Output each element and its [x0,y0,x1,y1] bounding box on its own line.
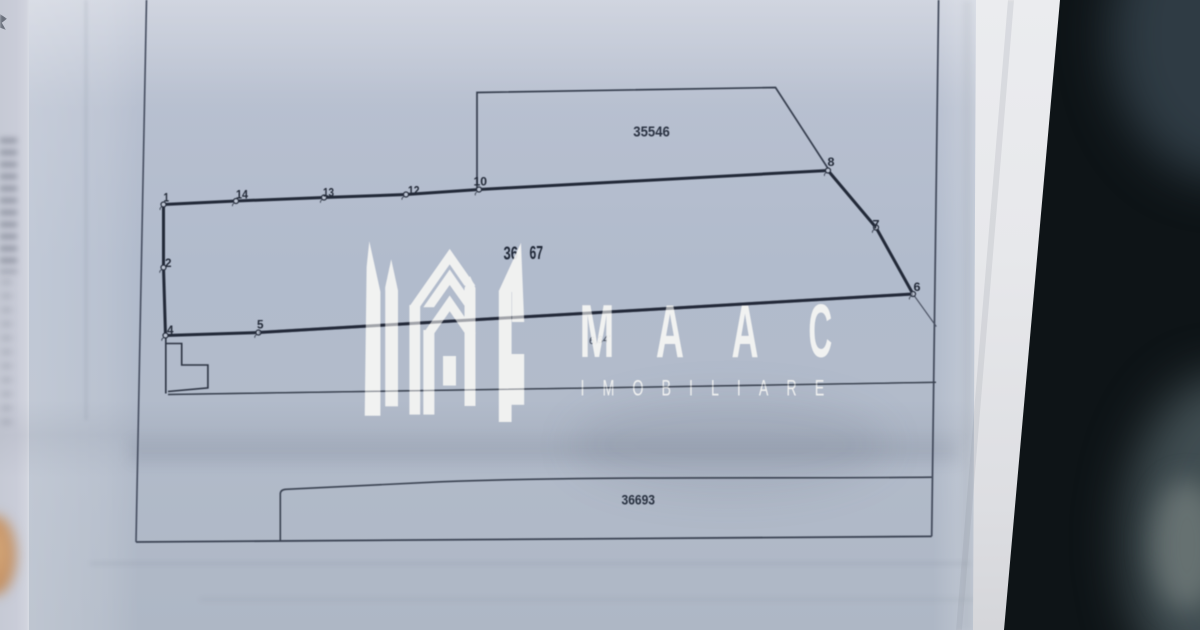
svg-text:13: 13 [323,186,334,200]
svg-text:4: 4 [167,323,174,337]
svg-text:C: C [808,291,832,374]
svg-text:M: M [580,289,615,373]
svg-text:14: 14 [236,188,248,202]
svg-text:35546: 35546 [633,124,670,140]
svg-text:A: A [732,289,759,374]
svg-text:6: 6 [914,280,921,294]
svg-text:10: 10 [474,175,488,189]
svg-text:12: 12 [408,184,420,198]
svg-text:7: 7 [873,218,880,232]
svg-text:8: 8 [828,155,835,169]
svg-text:A: A [656,289,684,373]
svg-text:5: 5 [257,318,264,332]
svg-text:36693: 36693 [622,493,656,508]
svg-text:2: 2 [165,256,172,270]
svg-text:67: 67 [530,243,544,263]
svg-text:1: 1 [164,191,170,205]
